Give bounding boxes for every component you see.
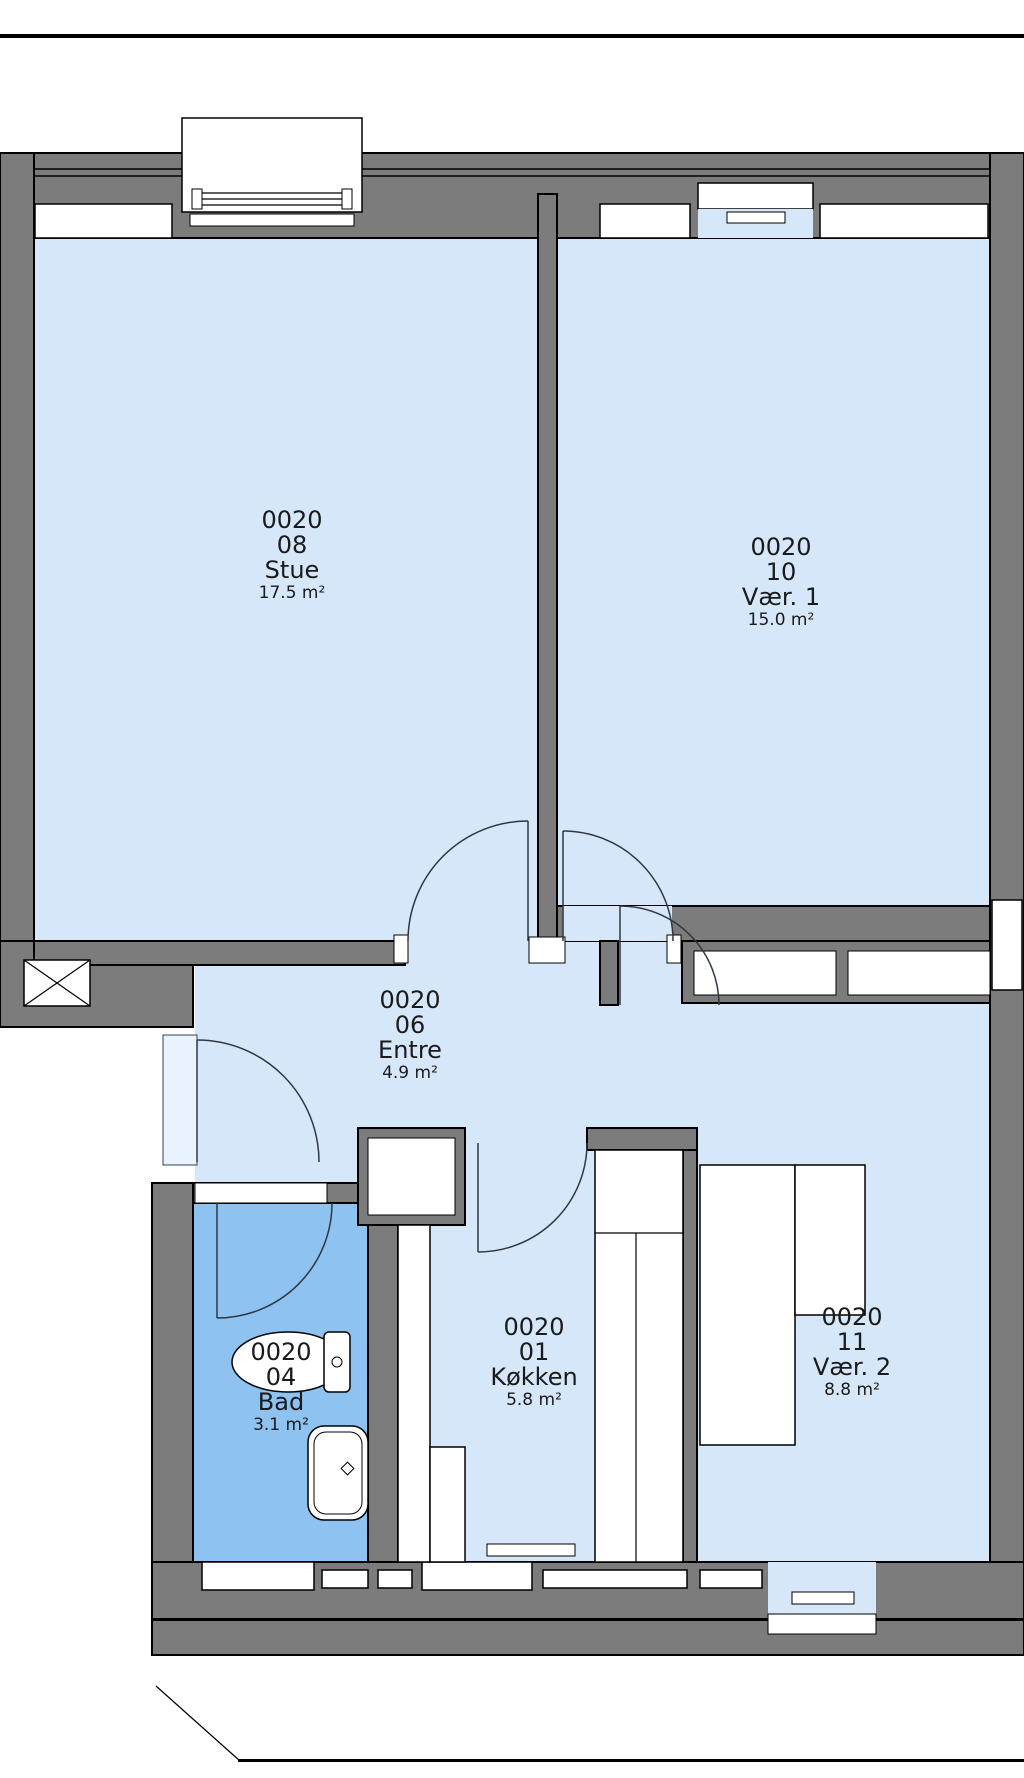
kitchen-counter-left (398, 1225, 430, 1562)
window-south-small-2 (378, 1570, 412, 1588)
bay-vaer2-floor (768, 1562, 876, 1616)
room-name: Bad (250, 1390, 311, 1415)
door-jamb-stue (394, 935, 408, 963)
room-area: 8.8 m² (813, 1380, 891, 1400)
room-code: 0020 (378, 988, 442, 1013)
window-south-small-1 (322, 1570, 368, 1588)
balcony-railing-post (342, 189, 352, 209)
room-label-entre: 0020 06 Entre 4.9 m² (378, 988, 442, 1083)
window-koekken-south (422, 1562, 532, 1590)
balcony-railing-post (192, 189, 202, 209)
entry-threshold (163, 1035, 197, 1165)
room-name: Vær. 2 (813, 1355, 891, 1380)
shaft-box (24, 960, 90, 1006)
sink-basin (314, 1432, 362, 1514)
window-bad-south (202, 1562, 314, 1590)
balcony-door-opening (182, 118, 362, 212)
window-south-wide (543, 1570, 687, 1588)
wall-koekken-vaer2-divider (683, 1150, 697, 1562)
kitchen-counter-left-step (430, 1447, 465, 1562)
floor-plan-page: 0020 08 Stue 17.5 m² 0020 10 Vær. 1 15.0… (0, 0, 1024, 1778)
room-area: 17.5 m² (259, 583, 326, 603)
wall-koekken-north (587, 1128, 697, 1150)
toilet-flush-button (332, 1357, 342, 1367)
balcony-door-sill (190, 214, 354, 226)
room-number: 06 (378, 1013, 442, 1038)
room-code: 0020 (813, 1305, 891, 1330)
wardrobe-vaer2-west (700, 1165, 795, 1445)
room-area: 15.0 m² (742, 610, 820, 630)
room-code: 0020 (250, 1340, 311, 1365)
window-vaer1-sill (727, 212, 785, 223)
room-number: 10 (742, 560, 820, 585)
room-number: 08 (259, 533, 326, 558)
window-koekken-sill (487, 1544, 575, 1556)
site-line-bottom (238, 1759, 1024, 1762)
room-area: 3.1 m² (250, 1415, 311, 1435)
sink (308, 1426, 368, 1520)
door-jamb-vaer1 (667, 935, 681, 963)
wall-stue-vaer1-divider (538, 194, 557, 943)
window-vaer2-sill (792, 1592, 854, 1604)
room-name: Stue (259, 558, 326, 583)
window-vaer2-bay (768, 1614, 876, 1634)
closet-left-compartment (694, 951, 836, 995)
room-number: 11 (813, 1330, 891, 1355)
opening-east-wall (992, 900, 1022, 990)
wardrobe-vaer2-north (795, 1165, 865, 1315)
wall-stub-vaer2-door (600, 941, 618, 1005)
wall-bad-koekken-divider (368, 1225, 398, 1562)
room-number: 04 (250, 1365, 311, 1390)
room-label-vaer1: 0020 10 Vær. 1 15.0 m² (742, 535, 820, 630)
site-line-diagonal (156, 1686, 240, 1761)
room-area: 5.8 m² (490, 1390, 577, 1410)
kitchen-counter-right (595, 1150, 683, 1562)
closet-right-compartment (848, 951, 990, 995)
floor-plan-drawing (0, 0, 1024, 1778)
vaer1-door-opening (563, 906, 672, 941)
wall-south-edge-line (152, 1618, 1024, 1621)
room-number: 01 (490, 1340, 577, 1365)
room-code: 0020 (259, 508, 326, 533)
duct-box-koekken (368, 1138, 455, 1215)
wall-top-edge-line (0, 169, 1024, 176)
room-name: Entre (378, 1038, 442, 1063)
door-jamb-divider-cap (529, 937, 565, 963)
door-opening-bad (195, 1183, 327, 1203)
window-vaer1-east (820, 204, 988, 238)
room-name: Køkken (490, 1365, 577, 1390)
room-label-bad: 0020 04 Bad 3.1 m² (250, 1340, 311, 1435)
sheet-line-top (0, 34, 1024, 38)
room-label-stue: 0020 08 Stue 17.5 m² (259, 508, 326, 603)
room-label-koekken: 0020 01 Køkken 5.8 m² (490, 1315, 577, 1410)
window-vaer1-recessed (698, 183, 813, 209)
room-code: 0020 (742, 535, 820, 560)
wall-west (0, 153, 34, 1027)
room-code: 0020 (490, 1315, 577, 1340)
room-label-vaer2: 0020 11 Vær. 2 8.8 m² (813, 1305, 891, 1400)
room-area: 4.9 m² (378, 1063, 442, 1083)
room-name: Vær. 1 (742, 585, 820, 610)
window-vaer1-west (600, 204, 690, 238)
window-vaer2-small (700, 1570, 762, 1588)
window-stue (35, 204, 172, 238)
